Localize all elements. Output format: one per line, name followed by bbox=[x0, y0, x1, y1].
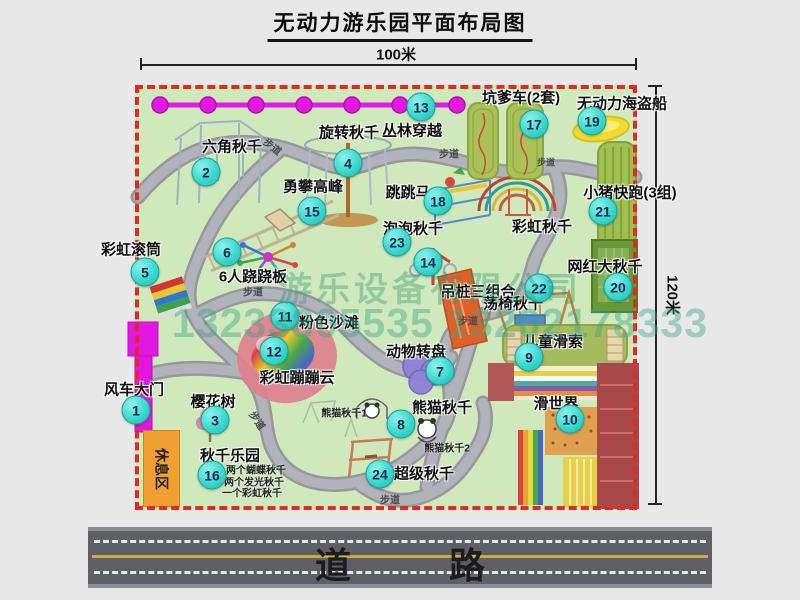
label-seesaw-6p: 6人跷跷板 bbox=[219, 266, 287, 287]
badge-13: 13 bbox=[407, 93, 436, 122]
badge-7: 7 bbox=[426, 357, 455, 386]
badge-15: 15 bbox=[298, 197, 327, 226]
road: 道 路 bbox=[88, 527, 712, 588]
badge-24: 24 bbox=[366, 460, 395, 489]
walkway-label: 步道 bbox=[439, 146, 459, 161]
badge-8: 8 bbox=[387, 410, 416, 439]
badge-6: 6 bbox=[213, 238, 242, 267]
watermark-phone: 13233805535 13202178333 bbox=[172, 300, 708, 347]
walkway-label: 步道 bbox=[380, 492, 400, 507]
badge-19: 19 bbox=[578, 107, 607, 136]
badge-21: 21 bbox=[589, 197, 618, 226]
label-rainbow-bouncy-cloud: 彩虹蹦蹦云 bbox=[259, 367, 334, 388]
park-layout-screenshot: 无动力游乐园平面布局图 100米 120米 bbox=[0, 0, 800, 600]
top-scale-tick-right bbox=[635, 58, 637, 70]
badge-4: 4 bbox=[334, 149, 363, 178]
right-scale-tick-top bbox=[648, 85, 662, 87]
label-super-swing: 超级秋千 bbox=[394, 463, 454, 484]
walkway-label: 步道 bbox=[537, 156, 555, 169]
slide-world-icon bbox=[488, 363, 639, 509]
label-rotating-swing: 旋转秋千 bbox=[319, 122, 379, 143]
badge-5: 5 bbox=[131, 258, 160, 287]
right-scale-tick-bottom bbox=[648, 503, 662, 505]
badge-17: 17 bbox=[520, 110, 549, 139]
label-pit-cars: 坑爹车(2套) bbox=[482, 87, 560, 108]
label-hexagon-swing: 六角秋千 bbox=[202, 136, 262, 157]
badge-1: 1 bbox=[122, 396, 151, 425]
right-scale-line bbox=[655, 86, 657, 504]
badge-10: 10 bbox=[556, 405, 585, 434]
page-title: 无动力游乐园平面布局图 bbox=[268, 7, 533, 37]
badge-18: 18 bbox=[424, 187, 453, 216]
label-jungle-crossing: 丛林穿越 bbox=[382, 120, 442, 141]
badge-23: 23 bbox=[383, 228, 412, 257]
top-scale-line bbox=[140, 64, 637, 66]
label-panda-swing: 熊猫秋千 bbox=[412, 397, 472, 418]
badge-20: 20 bbox=[604, 273, 633, 302]
label-panda-swing-2: 熊猫秋千2 bbox=[424, 440, 470, 455]
label-rainbow-roller: 彩虹滚筒 bbox=[101, 239, 161, 260]
label-climbing-peak: 勇攀高峰 bbox=[283, 176, 343, 197]
badge-2: 2 bbox=[192, 158, 221, 187]
label-swing-park-note-3: 一个彩虹秋千 bbox=[222, 485, 282, 500]
badge-16: 16 bbox=[198, 461, 227, 490]
top-scale-tick-left bbox=[140, 58, 142, 70]
badge-3: 3 bbox=[201, 406, 230, 435]
road-label: 道 路 bbox=[88, 537, 712, 589]
rest-area: 休息区 bbox=[143, 430, 180, 507]
label-panda-swing-1: 熊猫秋千1 bbox=[321, 405, 367, 420]
top-scale-label: 100米 bbox=[376, 44, 416, 65]
label-rainbow-swing: 彩虹秋千 bbox=[512, 216, 572, 237]
